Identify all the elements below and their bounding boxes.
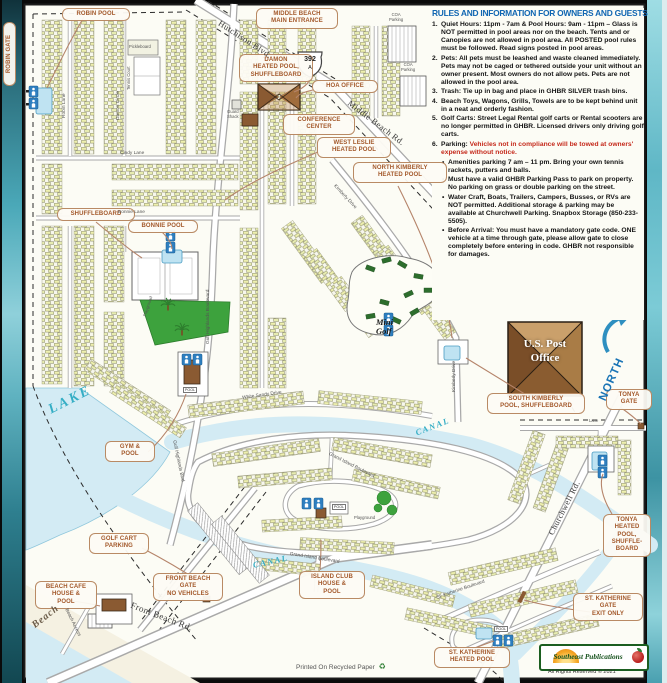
rule-trash: 3. Trash: Tie up in bag and place in GHB…	[432, 88, 644, 96]
label-tonya-heated-pool: TONYA HEATED POOL, SHUFFLE- BOARD	[603, 514, 651, 557]
label-tonya-gate: TONYA GATE	[606, 389, 652, 410]
rule-beach-toys: 4. Beach Toys, Wagons, Grills, Towels ar…	[432, 98, 644, 114]
label-middle-beach-main-entrance: MIDDLE BEACH MAIN ENTRANCE	[256, 8, 338, 29]
rules-title: RULES AND INFORMATION FOR OWNERS AND GUE…	[432, 8, 644, 18]
label-bonnie-pool: BONNIE POOL	[128, 220, 198, 233]
label-playground-island: Playground	[354, 516, 375, 521]
rule-pets: 2. Pets: All pets must be leashed and wa…	[432, 55, 644, 87]
label-coa-parking-2: COA Parking	[401, 63, 415, 73]
route-392-number: 392	[297, 56, 323, 63]
rule-quiet-hours: 1. Quiet Hours: 11pm - 7am & Pool Hours:…	[432, 21, 644, 53]
label-west-leslie-heated-pool: WEST LESLIE HEATED POOL	[317, 137, 391, 158]
pool-tag-island: POOL	[332, 504, 346, 510]
label-front-beach-gate: FRONT BEACH GATE NO VEHICLES	[153, 573, 223, 601]
label-us-post-office: U.S. Post Office	[508, 338, 582, 366]
label-lane: Lane	[589, 419, 598, 424]
label-pickleboard: Pickleboard	[129, 45, 151, 50]
label-beach-cafe: BEACH CAFE HOUSE & POOL	[35, 581, 97, 609]
label-st-katherine-gate: ST. KATHERINE GATE EXIT ONLY	[573, 593, 643, 621]
label-golf-cart-parking: GOLF CART PARKING	[89, 533, 149, 554]
street-damon-circle: Damon Circle	[116, 91, 121, 120]
rights-reserved: All Rights Reserved © 2021	[548, 669, 616, 675]
publisher-logo-box: Southeast Publications	[539, 644, 649, 671]
parking-bullet-pass: •Must have a valid GHBR Parking Pass to …	[442, 176, 644, 192]
recycle-icon: ♻	[379, 662, 386, 671]
rules-panel: RULES AND INFORMATION FOR OWNERS AND GUE…	[432, 8, 644, 320]
label-south-kimberly-pool: SOUTH KIMBERLY POOL, SHUFFLEBOARD	[487, 393, 585, 414]
label-robin-pool: ROBIN POOL	[62, 8, 130, 21]
label-coa-parking-1: COA Parking	[389, 13, 403, 23]
publisher-name: Southeast Publications	[545, 652, 631, 661]
printed-note: Printed On Recycled Paper ♻	[296, 662, 386, 671]
label-tennis-court: Tennis Court	[127, 66, 132, 90]
label-conference-center: CONFERENCE CENTER	[283, 114, 355, 135]
street-robin-lane: Robin Lane	[62, 93, 67, 118]
label-hoa-office: HOA OFFICE	[312, 80, 378, 93]
rule-golf-carts: 5. Golf Carts: Street Legal Rental golf …	[432, 115, 644, 139]
label-guard-shack: Guard Shack	[227, 110, 239, 120]
label-robin-gate: ROBIN GATE	[3, 22, 16, 86]
parking-bullet-amenities: •Amenities parking 7 am – 11 pm. Bring y…	[442, 159, 644, 175]
parking-bullet-watercraft: •Water Craft, Boats, Trailers, Campers, …	[442, 194, 644, 226]
pool-tag-gym: POOL	[183, 387, 197, 393]
label-island-club: ISLAND CLUB HOUSE & POOL	[299, 571, 365, 599]
rule-parking: 6. Parking: Vehicles not in compliance w…	[432, 141, 644, 157]
label-st-katherine-heated-pool: ST. KATHERINE HEATED POOL	[434, 647, 510, 668]
pool-tag-st-katherine: POOL	[494, 626, 508, 632]
street-kimberly-drive-lower: Kimberly Drive	[452, 361, 457, 392]
route-392-letter: A	[297, 65, 323, 71]
label-mini-golf: Mini Golf	[376, 318, 393, 337]
street-gulf-highlands-boulevard: Gulf Highlands Boulevard	[206, 290, 211, 344]
parking-bullet-gate-code: •Before Arrival: You must have a mandato…	[442, 227, 644, 259]
label-gym-pool: GYM & POOL	[105, 441, 155, 462]
brochure-scan: RULES AND INFORMATION FOR OWNERS AND GUE…	[0, 0, 667, 683]
apple-icon	[632, 651, 644, 663]
street-bonnie-lane: Bonnie Lane	[118, 210, 145, 215]
printed-note-text: Printed On Recycled Paper	[296, 664, 375, 671]
label-north-kimberly-heated-pool: NORTH KIMBERLY HEATED POOL	[353, 162, 447, 183]
street-cindy-lane: Cindy Lane	[120, 151, 144, 156]
